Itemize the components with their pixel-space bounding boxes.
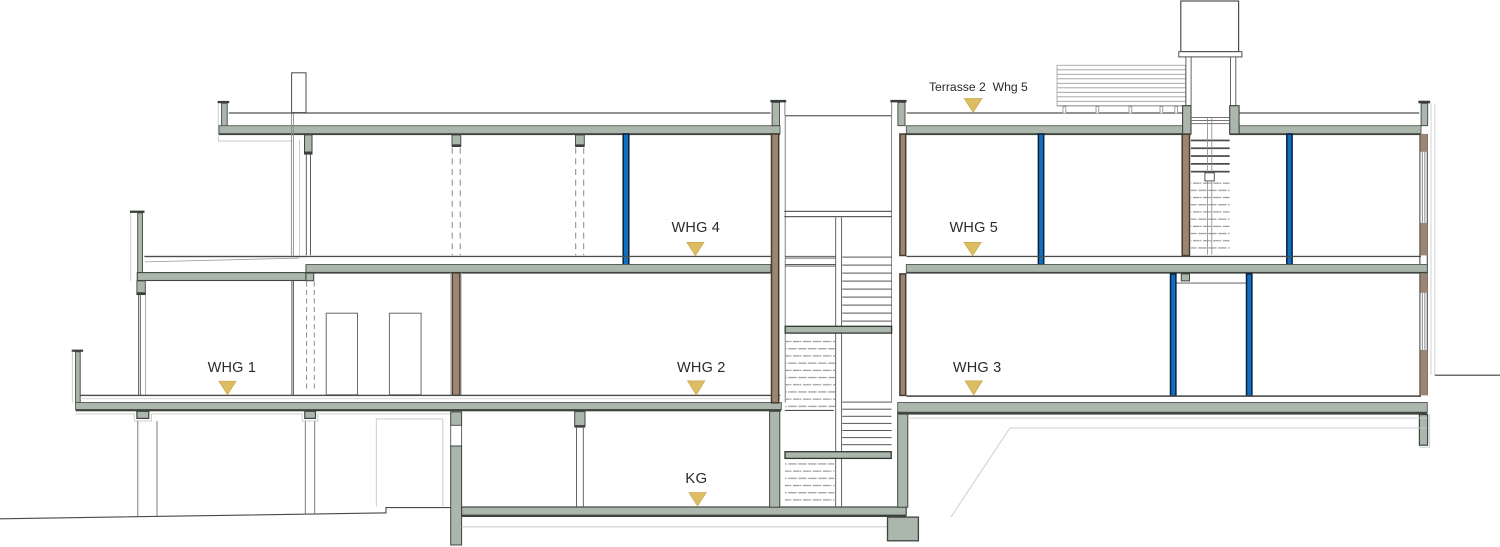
svg-text:WHG 3: WHG 3 xyxy=(953,360,1002,376)
svg-text:WHG 4: WHG 4 xyxy=(672,220,721,236)
svg-text:KG: KG xyxy=(685,470,707,487)
svg-text:WHG 1: WHG 1 xyxy=(208,360,257,376)
svg-text:WHG 2: WHG 2 xyxy=(677,360,726,376)
svg-text:Terrasse 2 Whg 5: Terrasse 2 Whg 5 xyxy=(929,80,1028,94)
svg-text:WHG 5: WHG 5 xyxy=(950,220,999,236)
